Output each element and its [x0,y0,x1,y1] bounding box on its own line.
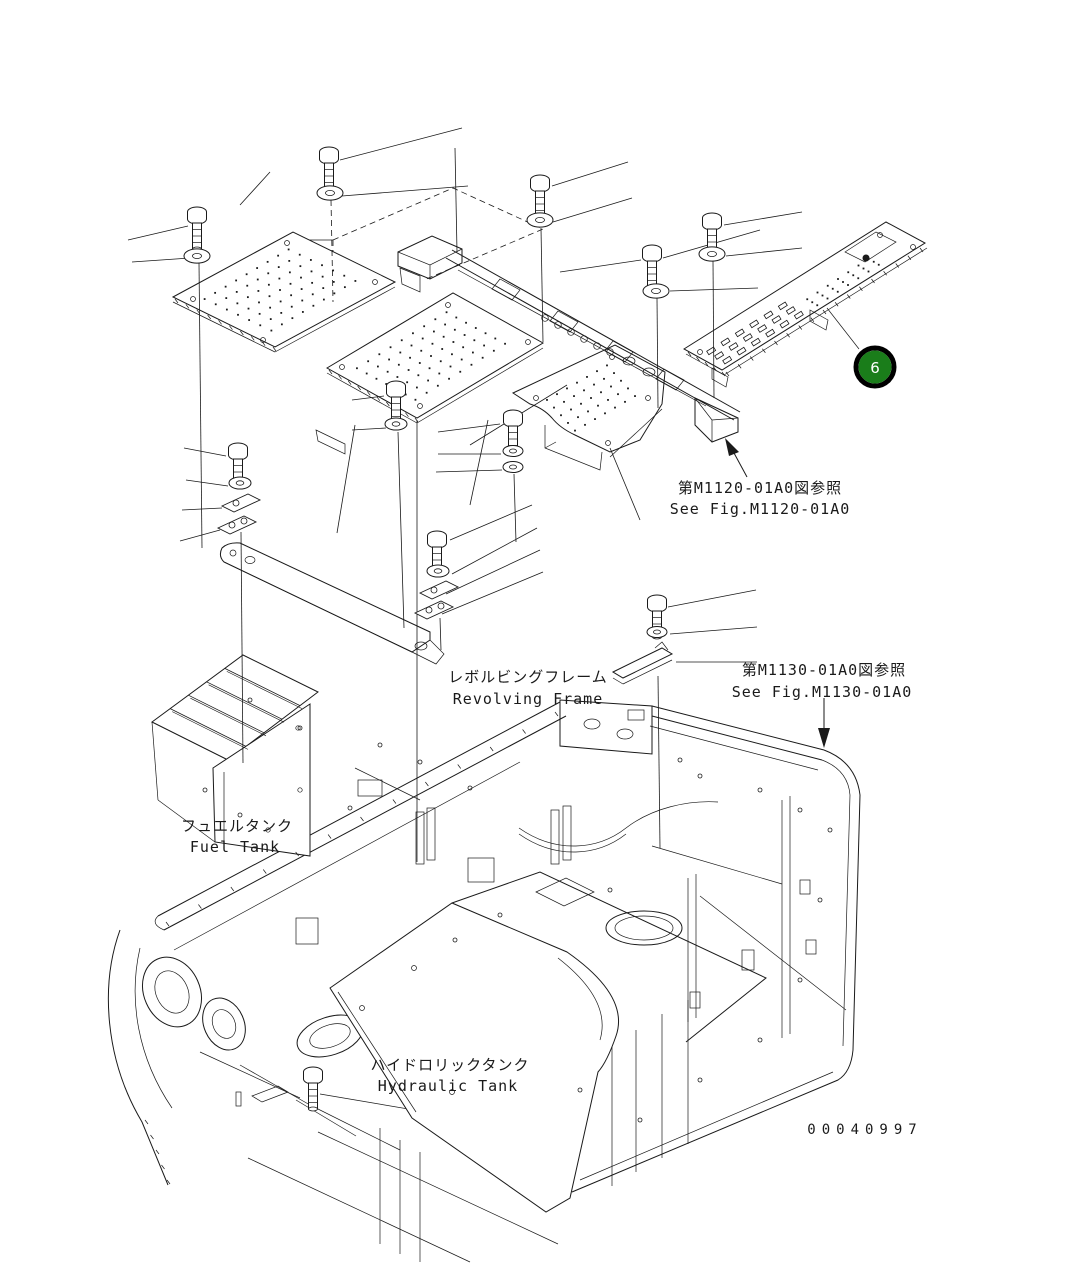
shim-plate [415,601,453,619]
arrow-m1120 [725,438,747,477]
ref-m1130-jp: 第M1130-01A0図参照 [742,661,906,679]
washer [385,418,407,430]
label-revolving-frame-en: Revolving Frame [453,690,603,708]
leader-lines [128,128,802,662]
mounting-bolt [320,147,339,191]
washer [647,627,667,638]
washer [643,284,669,298]
washer [699,247,725,261]
arrow-m1130 [818,698,830,748]
washer [527,213,553,227]
mounting-bolt [643,245,662,289]
label-hydraulic-tank-en: Hydraulic Tank [378,1077,518,1095]
label-fuel-tank-en: Fuel Tank [190,838,280,856]
hydraulic-tank [330,872,766,1212]
strip-bracket [220,543,444,664]
ref-m1130-en: See Fig.M1130-01A0 [732,683,913,701]
label-fuel-tank-jp: フュエルタンク [181,817,293,835]
washer [503,462,523,473]
label-hydraulic-tank-jp: ハイドロリックタンク [370,1056,529,1074]
washer [184,249,210,263]
label-revolving-frame-jp: レボルビングフレーム [448,668,608,686]
small-strip-part [613,642,672,684]
ref-m1120-en: See Fig.M1120-01A0 [670,500,851,518]
ref-m1120-jp: 第M1120-01A0図参照 [678,479,842,497]
washer [427,565,449,577]
shim-plate [222,494,260,512]
drawing-number: 00040997 [807,1122,922,1138]
callout-6-badge: 6 [827,308,894,386]
cover-plate-1 [173,232,395,352]
shim-plate [218,516,256,534]
parts-diagram-page: 6 第M1120-01A0図参照 See Fig.M1120-01A0 第M11… [0,0,1071,1282]
cover-plate-3 [513,345,665,470]
washer [229,477,251,489]
mounting-bolt [188,207,207,251]
callout-6-number: 6 [870,359,880,377]
shim-plate [420,581,458,599]
washer [503,446,523,457]
mounting-bolt [304,1067,323,1111]
washer [317,186,343,200]
